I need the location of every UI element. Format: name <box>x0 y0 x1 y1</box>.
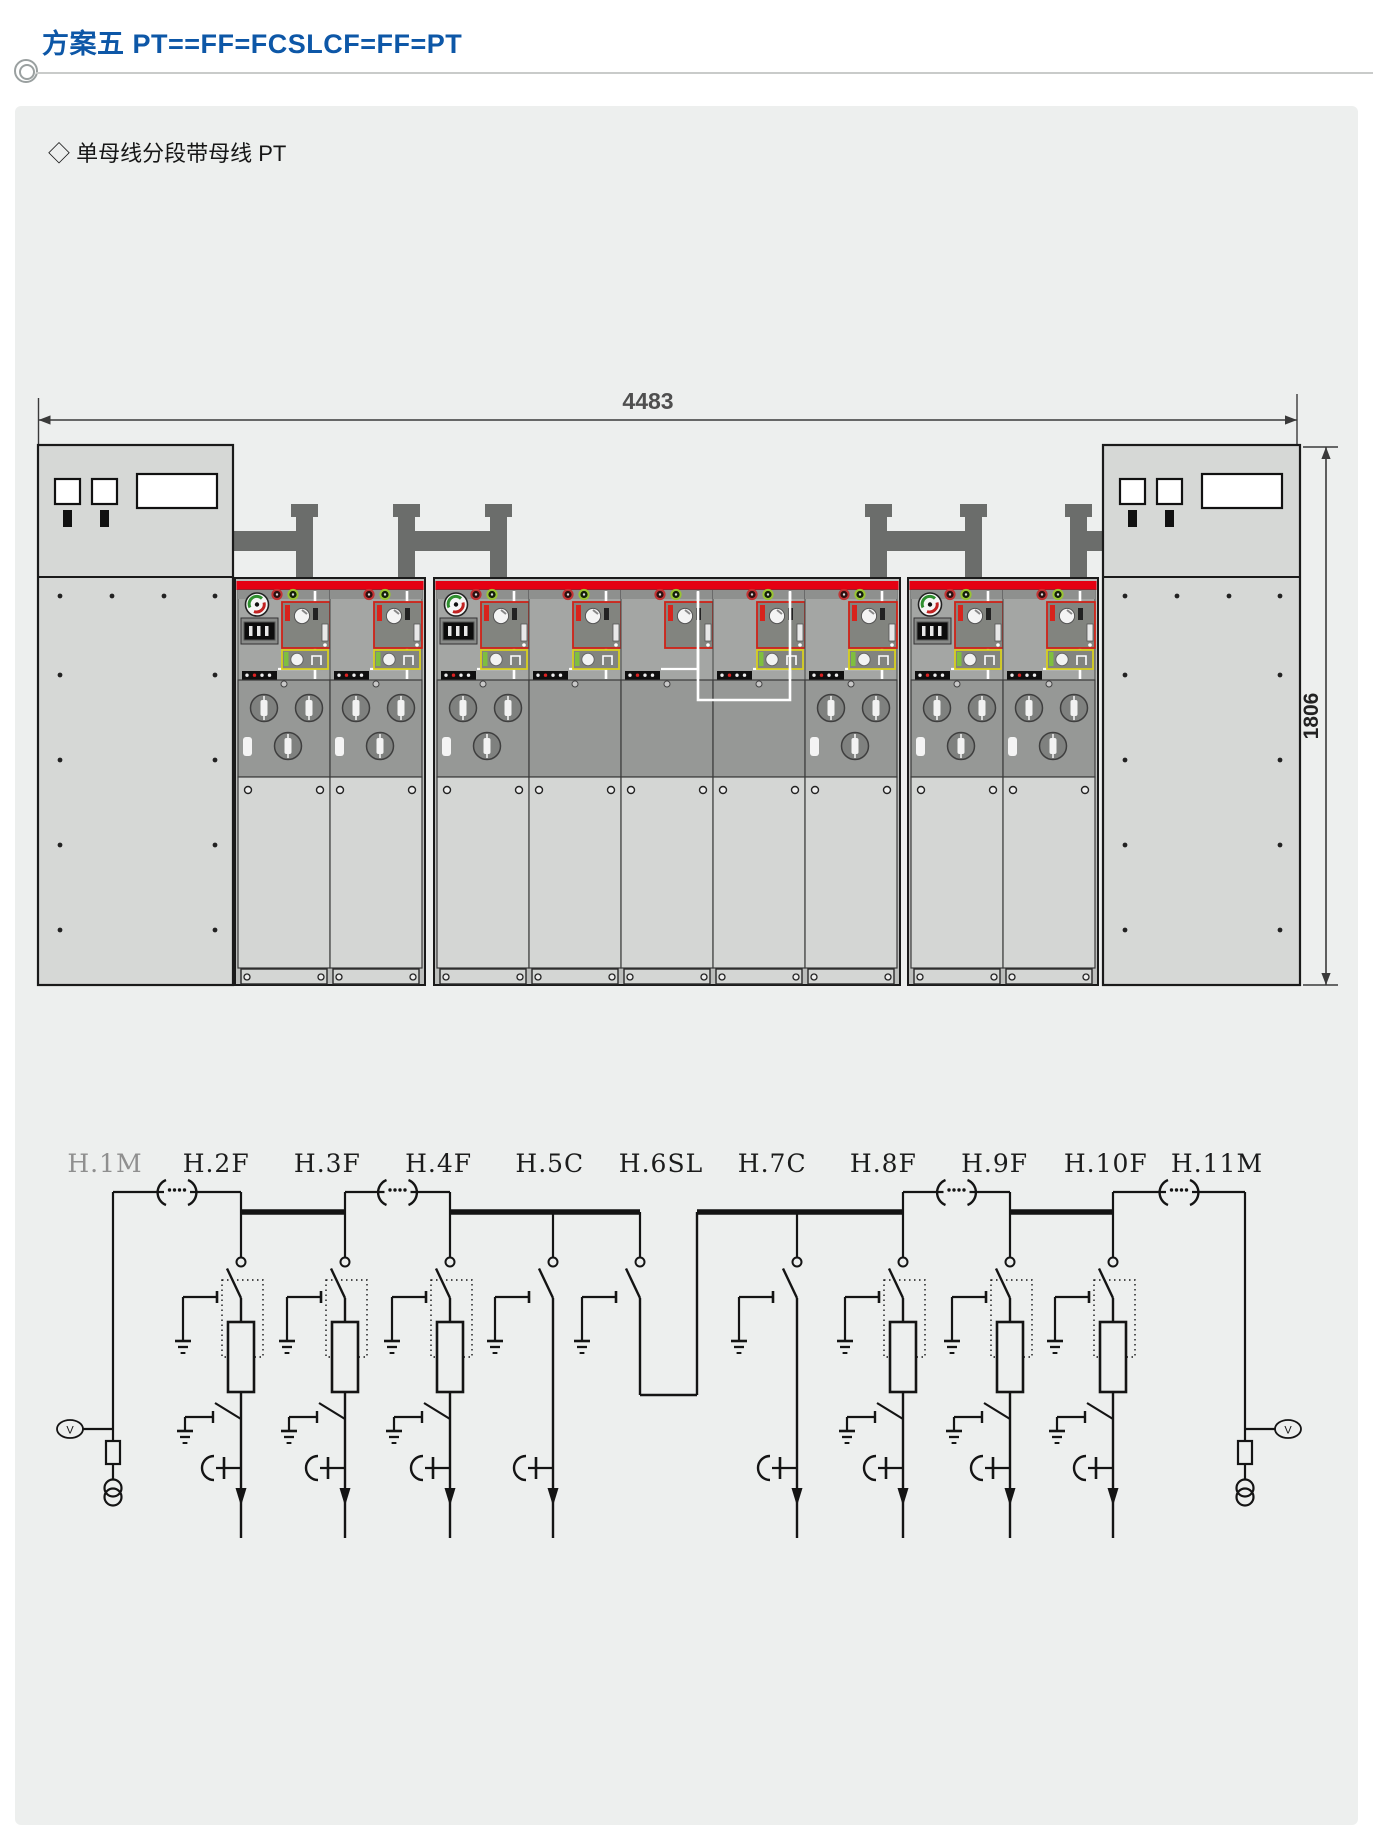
schematic-unit-H.11M: H.11MV <box>1171 1149 1301 1506</box>
schematic-unit-H.2F: H.2F <box>175 1149 263 1538</box>
schematic-busbar <box>113 1180 1245 1212</box>
schematic-unit-label: H.6SL <box>619 1149 703 1178</box>
schematic-unit-label: H.11M <box>1171 1149 1263 1178</box>
schematic-unit-H.5C: H.5C <box>487 1149 584 1538</box>
svg-text:V: V <box>1284 1425 1292 1437</box>
schematic-unit-H.4F: H.4F <box>384 1149 472 1538</box>
cabinet-group-1 <box>235 578 425 985</box>
schematic-unit-H.7C: H.7C <box>731 1149 807 1538</box>
schematic-unit-label: H.8F <box>850 1149 917 1178</box>
panel-H.8F <box>805 590 897 984</box>
dim-height-label: 1806 <box>1300 693 1323 740</box>
schematic-unit-H.10F: H.10F <box>1047 1149 1148 1538</box>
schematic-unit-label: H.7C <box>738 1149 807 1178</box>
svg-text:V: V <box>66 1425 74 1437</box>
cabinet-group-2 <box>434 578 900 985</box>
schematic-unit-H.9F: H.9F <box>944 1149 1032 1538</box>
schematic-unit-label: H.5C <box>515 1149 584 1178</box>
dim-width-label: 4483 <box>622 388 673 414</box>
panel-H.4F <box>437 590 529 984</box>
schematic-unit-label: H.4F <box>405 1149 472 1178</box>
schematic-unit-H.1M: H.1MV <box>57 1149 143 1506</box>
panel-H.2F <box>238 590 330 984</box>
cabinet-group-3 <box>908 578 1098 985</box>
panel-H.10F <box>1003 590 1095 984</box>
panel-H.5C <box>529 590 621 984</box>
schematic-unit-H.6SL: H.6SL <box>574 1149 703 1395</box>
panel-H.9F <box>911 590 1003 984</box>
schematic-unit-label: H.9F <box>961 1149 1028 1178</box>
schematic-unit-H.8F: H.8F <box>837 1149 925 1538</box>
left-end-cabinet <box>38 445 233 985</box>
schematic-unit-label: H.1M <box>67 1149 142 1178</box>
busbar-ducts <box>233 504 1104 583</box>
schematic-unit-label: H.2F <box>183 1149 250 1178</box>
panel-H.3F <box>330 590 422 984</box>
schematic-unit-label: H.3F <box>294 1149 361 1178</box>
right-end-cabinet <box>1103 445 1300 985</box>
schematic-unit-H.3F: H.3F <box>279 1149 367 1538</box>
schematic-unit-label: H.10F <box>1064 1149 1148 1178</box>
technical-drawing: 44831806H.1MVH.2FH.3FH.4FH.5CH.6SLH.7CH.… <box>0 0 1373 1848</box>
document-page: 方案五 PT==FF=FCSLCF=FF=PT ◇ 单母线分段带母线 PT 44… <box>0 0 1373 1848</box>
